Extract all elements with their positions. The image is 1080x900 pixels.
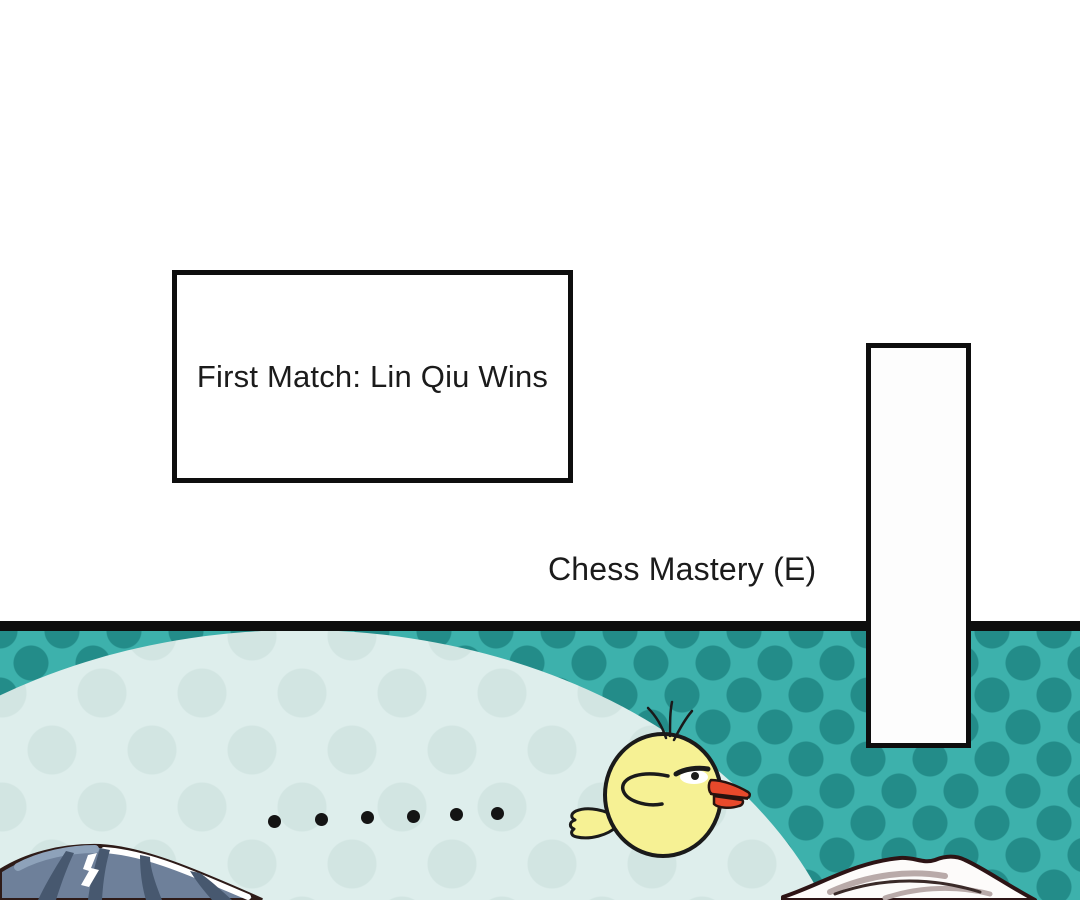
- skill-label: Chess Mastery (E): [548, 551, 816, 588]
- thought-dot: [491, 807, 504, 820]
- empty-vertical-panel: [866, 343, 971, 748]
- thought-dot: [450, 808, 463, 821]
- comic-panel: First Match: Lin Qiu Wins Chess Mastery …: [0, 0, 1080, 900]
- chick-beak: [709, 780, 750, 808]
- thought-dot: [361, 811, 374, 824]
- blue-hair-character: [0, 833, 275, 900]
- white-hair-character: [775, 848, 1040, 900]
- chick-character: [558, 688, 758, 862]
- chick-body: [605, 734, 721, 856]
- caption-box: First Match: Lin Qiu Wins: [172, 270, 573, 483]
- thought-dot: [315, 813, 328, 826]
- thought-dot: [407, 810, 420, 823]
- caption-text: First Match: Lin Qiu Wins: [197, 359, 548, 395]
- thought-dot: [268, 815, 281, 828]
